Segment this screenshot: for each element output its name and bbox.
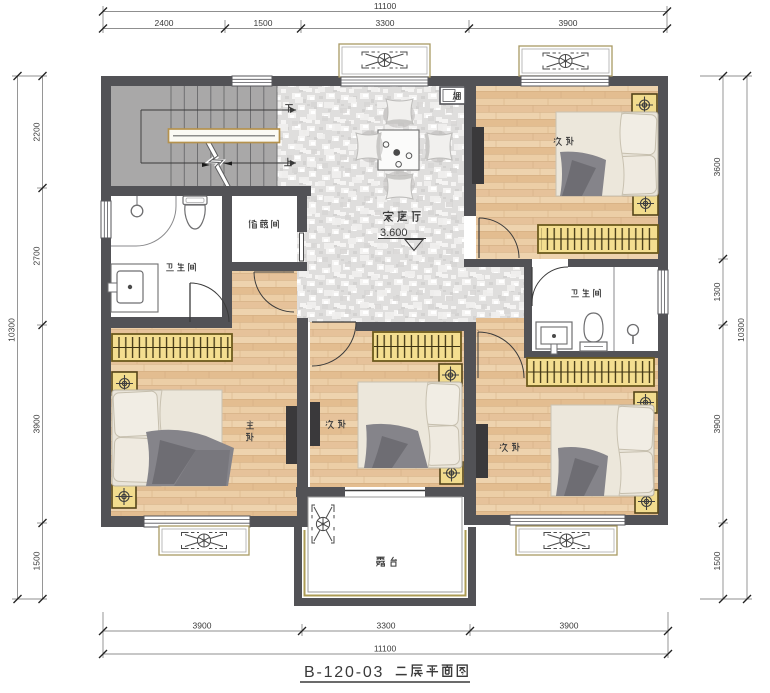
svg-text:10300: 10300	[7, 318, 17, 342]
svg-text:3300: 3300	[377, 621, 396, 631]
svg-text:3900: 3900	[712, 414, 722, 433]
svg-text:B-120-03: B-120-03	[304, 664, 384, 681]
svg-text:3300: 3300	[376, 18, 395, 28]
svg-text:1500: 1500	[712, 551, 722, 570]
svg-text:2700: 2700	[32, 246, 42, 265]
svg-text:1500: 1500	[254, 18, 273, 28]
svg-text:2200: 2200	[32, 122, 42, 141]
svg-text:1300: 1300	[712, 282, 722, 301]
svg-text:2400: 2400	[155, 18, 174, 28]
svg-text:11100: 11100	[374, 644, 397, 654]
svg-text:11100: 11100	[374, 1, 397, 11]
svg-text:3900: 3900	[559, 18, 578, 28]
svg-text:3900: 3900	[560, 621, 579, 631]
svg-text:3900: 3900	[32, 414, 42, 433]
svg-text:1500: 1500	[32, 551, 42, 570]
svg-text:3900: 3900	[193, 621, 212, 631]
svg-text:3600: 3600	[712, 157, 722, 176]
svg-text:3.600: 3.600	[380, 227, 408, 239]
svg-text:10300: 10300	[736, 318, 746, 342]
